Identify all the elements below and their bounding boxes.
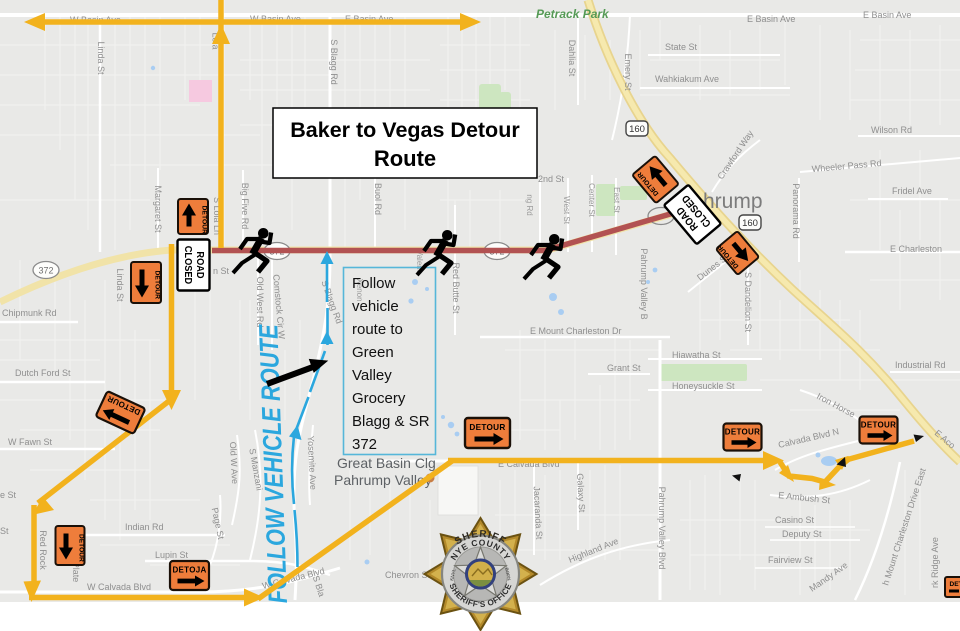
svg-text:Follow: Follow bbox=[352, 275, 396, 292]
svg-text:E Mount Charleston Dr: E Mount Charleston Dr bbox=[530, 326, 622, 336]
svg-text:DETOUR: DETOUR bbox=[861, 421, 896, 430]
svg-text:route to: route to bbox=[352, 321, 403, 338]
svg-text:Wahkiakum Ave: Wahkiakum Ave bbox=[655, 74, 719, 84]
svg-text:Galaxy St: Galaxy St bbox=[575, 473, 587, 513]
svg-text:Deputy St: Deputy St bbox=[782, 529, 822, 539]
svg-text:State St: State St bbox=[665, 42, 698, 52]
svg-text:Grocery: Grocery bbox=[352, 390, 406, 407]
svg-text:DETOUR: DETOUR bbox=[78, 534, 85, 562]
svg-text:hrump: hrump bbox=[703, 190, 763, 213]
svg-text:Green: Green bbox=[352, 344, 394, 361]
svg-text:Lupin St: Lupin St bbox=[155, 550, 189, 560]
svg-text:Grant St: Grant St bbox=[607, 363, 641, 373]
svg-text:372: 372 bbox=[38, 266, 53, 276]
svg-text:St: St bbox=[0, 526, 9, 536]
svg-text:Pahrump Valley Blvd: Pahrump Valley Blvd bbox=[657, 487, 667, 570]
svg-text:Route: Route bbox=[374, 146, 436, 171]
svg-text:n St: n St bbox=[213, 266, 230, 276]
svg-text:Red Rock: Red Rock bbox=[38, 530, 48, 570]
svg-text:Honeysuckle St: Honeysuckle St bbox=[672, 381, 735, 391]
svg-text:e St: e St bbox=[0, 490, 17, 500]
svg-text:DETOUR: DETOUR bbox=[201, 206, 208, 235]
svg-text:E Charleston: E Charleston bbox=[890, 244, 942, 254]
svg-text:Linda St: Linda St bbox=[115, 268, 125, 302]
svg-text:E Basin Ave: E Basin Ave bbox=[747, 14, 795, 24]
svg-text:Blagg & SR: Blagg & SR bbox=[352, 413, 430, 430]
svg-text:W Calvada Blvd: W Calvada Blvd bbox=[87, 582, 151, 592]
svg-text:Valley: Valley bbox=[352, 367, 392, 384]
svg-text:vehicle: vehicle bbox=[352, 298, 399, 315]
svg-text:Big Five Rd: Big Five Rd bbox=[240, 183, 250, 230]
svg-text:Fridel Ave: Fridel Ave bbox=[892, 186, 932, 196]
svg-text:Industrial Rd: Industrial Rd bbox=[895, 360, 946, 370]
svg-text:S Blagg Rd: S Blagg Rd bbox=[329, 39, 339, 85]
svg-text:Great Basin Clg: Great Basin Clg bbox=[337, 455, 436, 471]
svg-text:Center St: Center St bbox=[587, 183, 596, 218]
svg-text:Dutch Ford St: Dutch Ford St bbox=[15, 368, 71, 378]
svg-text:Fairview St: Fairview St bbox=[768, 555, 813, 565]
svg-text:DETOUR: DETOUR bbox=[469, 423, 505, 432]
svg-text:Red Butte St: Red Butte St bbox=[451, 262, 461, 314]
svg-text:Casino St: Casino St bbox=[775, 515, 815, 525]
svg-text:ROAD: ROAD bbox=[194, 251, 206, 278]
svg-text:Old West Rd: Old West Rd bbox=[255, 277, 265, 328]
svg-text:372: 372 bbox=[352, 436, 377, 453]
svg-text:Margaret St: Margaret St bbox=[153, 185, 163, 233]
svg-text:S Dandelion St: S Dandelion St bbox=[743, 272, 753, 333]
svg-text:Baker to Vegas Detour: Baker to Vegas Detour bbox=[290, 118, 520, 142]
svg-text:W Fawn St: W Fawn St bbox=[8, 437, 53, 447]
svg-text:CLOSED: CLOSED bbox=[182, 246, 194, 284]
svg-text:East St: East St bbox=[612, 187, 621, 214]
svg-text:Chevron St: Chevron St bbox=[385, 570, 431, 580]
svg-text:West St: West St bbox=[562, 196, 571, 225]
svg-text:Linda St: Linda St bbox=[96, 41, 106, 75]
svg-text:Pahrump Valley B: Pahrump Valley B bbox=[639, 248, 649, 319]
svg-text:Chipmunk Rd: Chipmunk Rd bbox=[2, 308, 57, 318]
svg-text:DETOUR: DETOUR bbox=[725, 428, 760, 437]
svg-text:DETOJA: DETOJA bbox=[172, 566, 206, 575]
svg-text:Buol Rd: Buol Rd bbox=[373, 183, 383, 215]
svg-text:rk Ridge Ave: rk Ridge Ave bbox=[930, 537, 940, 588]
svg-text:Petrack Park: Petrack Park bbox=[536, 7, 610, 21]
svg-text:Hiawatha St: Hiawatha St bbox=[672, 350, 721, 360]
svg-text:Indian Rd: Indian Rd bbox=[125, 522, 164, 532]
svg-text:Wilson Rd: Wilson Rd bbox=[871, 125, 912, 135]
svg-text:ng Rd: ng Rd bbox=[525, 194, 534, 215]
svg-text:Panorama Rd: Panorama Rd bbox=[791, 183, 801, 239]
svg-text:Dahlia St: Dahlia St bbox=[567, 40, 577, 77]
svg-text:160: 160 bbox=[742, 218, 758, 229]
svg-text:160: 160 bbox=[629, 124, 645, 135]
svg-text:2nd St: 2nd St bbox=[538, 174, 565, 184]
svg-text:DET: DET bbox=[950, 581, 960, 588]
svg-text:E Basin Ave: E Basin Ave bbox=[863, 10, 911, 20]
svg-text:Emery St: Emery St bbox=[623, 53, 633, 91]
svg-text:DETOUR: DETOUR bbox=[154, 271, 161, 300]
